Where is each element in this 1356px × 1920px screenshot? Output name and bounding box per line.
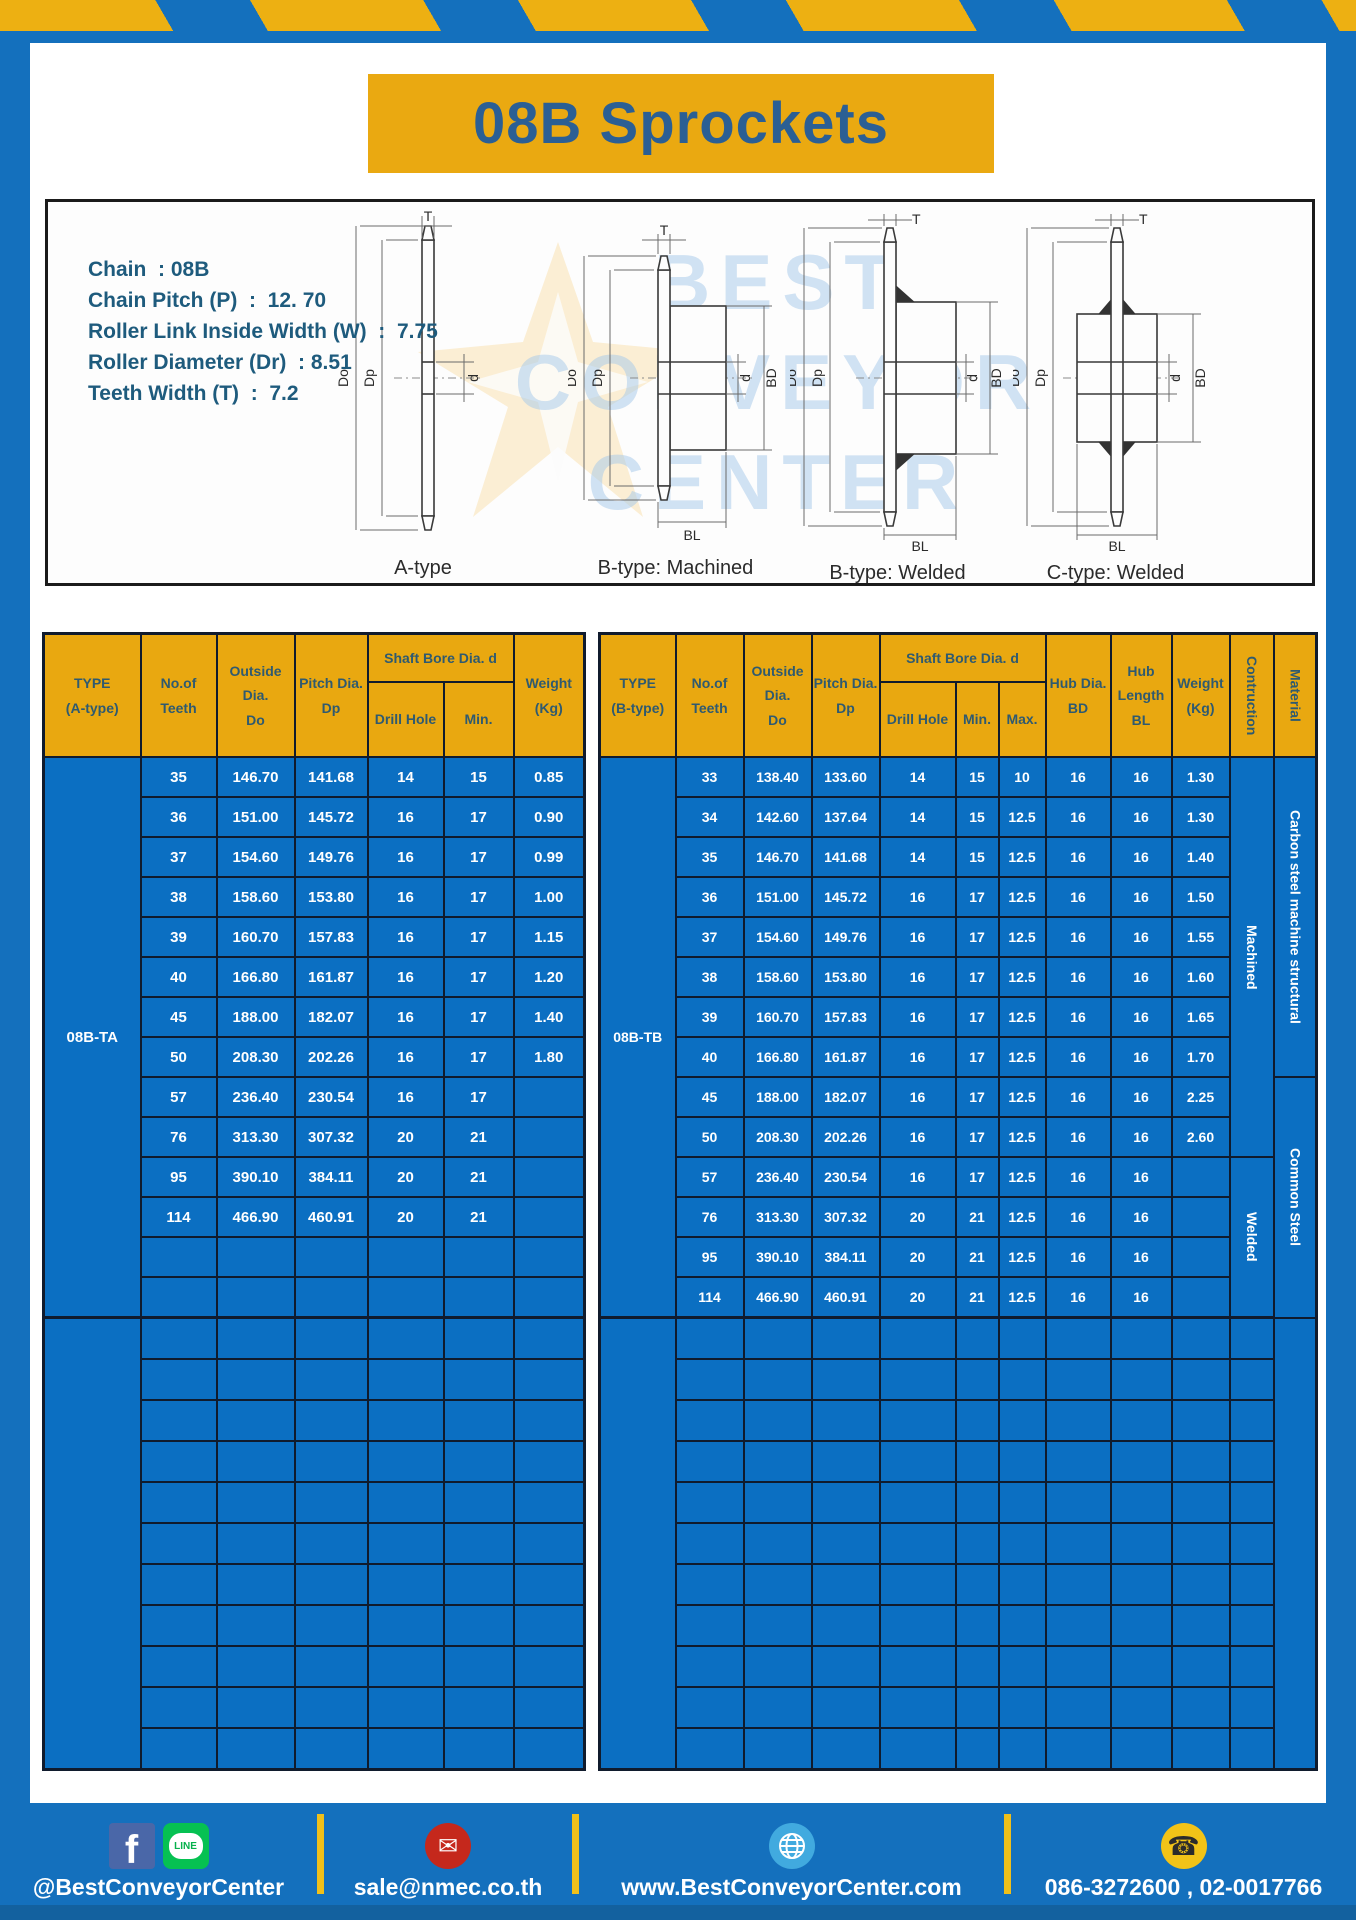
data-cell [141,1277,217,1318]
empty-cell [812,1441,880,1482]
catalog-page: { "title": "08B Sprockets", "specs": [ "… [0,0,1356,1920]
data-cell: 16 [1111,1157,1172,1197]
empty-cell [1111,1400,1172,1441]
data-cell: 14 [880,837,956,877]
dim-label-do: Do [1013,369,1022,387]
phone-numbers: 086-3272600 , 02-0017766 [1045,1874,1323,1901]
data-cell: 149.76 [812,917,880,957]
empty-cell [1046,1605,1111,1646]
data-cell: 16 [1111,1197,1172,1237]
header-teeth: No.of Teeth [141,634,217,758]
empty-cell [295,1605,368,1646]
data-cell [368,1237,444,1277]
empty-cell [880,1564,956,1605]
header-weight: Weight (Kg) [514,634,585,758]
dim-label-do: Do [568,369,579,387]
empty-cell [1111,1359,1172,1400]
data-cell: 16 [1111,757,1172,797]
data-cell: 16 [1046,797,1111,837]
data-cell: 153.80 [295,877,368,917]
b-type-machined-drawing-icon: T Do Dp d BD BL [568,210,783,550]
data-cell: 157.83 [812,997,880,1037]
empty-cell [1172,1605,1230,1646]
empty-cell [676,1400,744,1441]
dim-label-bl: BL [911,538,928,554]
empty-cell [514,1359,585,1400]
data-cell: 16 [368,797,444,837]
data-cell: 12.5 [999,1157,1046,1197]
data-cell: 38 [141,877,217,917]
data-cell: 154.60 [744,917,812,957]
data-cell [514,1237,585,1277]
empty-cell [368,1687,444,1728]
data-cell: 16 [1046,1237,1111,1277]
empty-cell [1046,1523,1111,1564]
data-cell: 33 [676,757,744,797]
data-cell: 153.80 [812,957,880,997]
empty-cell [676,1646,744,1687]
empty-cell [141,1564,217,1605]
empty-cell [514,1687,585,1728]
data-cell: 390.10 [217,1157,295,1197]
data-cell: 17 [956,1037,999,1077]
data-cell: 133.60 [812,757,880,797]
empty-cell [1111,1687,1172,1728]
data-cell: 16 [880,957,956,997]
empty-cell [744,1728,812,1770]
data-cell: 161.87 [295,957,368,997]
data-cell: 17 [444,997,514,1037]
empty-cell [295,1400,368,1441]
data-cell: 17 [444,917,514,957]
empty-cell [1230,1482,1274,1523]
data-cell: 0.99 [514,837,585,877]
data-cell: 137.64 [812,797,880,837]
table-row [600,1318,1317,1360]
empty-cell [141,1482,217,1523]
data-cell: 12.5 [999,877,1046,917]
empty-cell [999,1605,1046,1646]
data-cell: 21 [956,1237,999,1277]
table-row: 95390.10384.11202112.51616 [600,1237,1317,1277]
table-b-body: 08B-TB33138.40133.6014151016161.30Machin… [600,757,1317,1770]
data-cell: 154.60 [217,837,295,877]
header-shaft-bore: Shaft Bore Dia. d [880,634,1046,683]
data-cell: 1.40 [1172,837,1230,877]
empty-cell [744,1482,812,1523]
data-cell: 166.80 [744,1037,812,1077]
empty-cell [444,1523,514,1564]
header-min: Min. [444,682,514,757]
data-cell: 16 [1046,757,1111,797]
empty-cell [999,1359,1046,1400]
empty-cell [444,1400,514,1441]
data-cell: 16 [1111,1117,1172,1157]
dim-label-bl: BL [1108,538,1125,554]
dim-label-dp: Dp [589,369,605,387]
empty-cell [295,1646,368,1687]
dim-label-dp: Dp [809,369,825,387]
empty-cell [368,1318,444,1360]
empty-cell [880,1605,956,1646]
dim-label-t: T [660,222,669,238]
footer-phone-section: ☎ 086-3272600 , 02-0017766 [1011,1807,1356,1901]
data-cell: 146.70 [217,757,295,797]
data-cell: 17 [956,1157,999,1197]
data-cell: 12.5 [999,957,1046,997]
dim-label-d: d [1167,374,1183,382]
footer-social-section: f LINE @BestConveyorCenter [0,1807,317,1901]
data-cell: 16 [1046,1077,1111,1117]
material-cell: Common Steel [1274,1077,1317,1318]
header-teeth: No.of Teeth [676,634,744,758]
empty-cell [1111,1523,1172,1564]
empty-cell [744,1318,812,1360]
data-cell: 17 [444,957,514,997]
dim-label-do: Do [790,369,799,387]
data-cell: 16 [1046,1157,1111,1197]
data-cell: 39 [676,997,744,1037]
header-outside-dia: Outside Dia. Do [744,634,812,758]
data-cell: 12.5 [999,917,1046,957]
empty-cell [444,1646,514,1687]
empty-cell [1172,1359,1230,1400]
data-cell: 21 [956,1197,999,1237]
table-row: 36151.00145.72161712.516161.50 [600,877,1317,917]
data-cell: 1.50 [1172,877,1230,917]
empty-cell [999,1564,1046,1605]
empty-cell [744,1359,812,1400]
data-cell: 14 [880,797,956,837]
empty-cell [1172,1400,1230,1441]
spec-line: Chain Pitch (P) : 12. 70 [88,285,438,316]
empty-cell [1230,1400,1274,1441]
data-cell: 160.70 [744,997,812,1037]
empty-cell [368,1359,444,1400]
empty-cell [1111,1646,1172,1687]
data-cell: 141.68 [812,837,880,877]
empty-cell [999,1523,1046,1564]
diagram-caption: A-type [338,557,508,580]
page-body: 08B Sprockets BEST CONVEYOR CENTER Chain… [30,43,1326,1803]
empty-cell [744,1605,812,1646]
empty-cell [1046,1441,1111,1482]
data-cell: 10 [999,757,1046,797]
data-cell [444,1277,514,1318]
empty-cell [368,1482,444,1523]
phone-icon: ☎ [1161,1823,1207,1869]
footer-divider [572,1814,579,1894]
header-drill-hole: Drill Hole [880,682,956,757]
empty-cell [514,1646,585,1687]
data-cell: 16 [1046,1277,1111,1318]
data-cell: 16 [1111,1277,1172,1318]
empty-cell [1111,1728,1172,1770]
hazard-stripes [0,0,1356,31]
data-cell: 16 [368,1037,444,1077]
empty-cell [217,1318,295,1360]
data-cell: 16 [1111,1077,1172,1117]
data-cell: 236.40 [744,1157,812,1197]
data-cell [514,1077,585,1117]
data-cell: 16 [1046,877,1111,917]
data-cell: 35 [676,837,744,877]
empty-cell [1172,1482,1230,1523]
data-cell: 313.30 [217,1117,295,1157]
dim-label-t: T [424,210,433,224]
table-row: 50208.30202.26161712.516162.60 [600,1117,1317,1157]
facebook-icon: f [109,1823,155,1869]
empty-cell [676,1318,744,1360]
empty-cell [368,1523,444,1564]
header-min: Min. [956,682,999,757]
data-cell: 16 [1046,957,1111,997]
data-cell: 12.5 [999,1077,1046,1117]
empty-cell [141,1359,217,1400]
data-cell: 16 [368,997,444,1037]
empty-cell [1046,1400,1111,1441]
data-cell [1172,1237,1230,1277]
empty-cell [676,1605,744,1646]
data-cell: 39 [141,917,217,957]
table-row [600,1687,1317,1728]
empty-cell [217,1728,295,1770]
empty-cell [1046,1359,1111,1400]
empty-cell [444,1605,514,1646]
empty-cell [744,1400,812,1441]
empty-cell [676,1482,744,1523]
data-cell: 21 [444,1197,514,1237]
data-cell: 16 [1046,1117,1111,1157]
empty-cell [880,1482,956,1523]
data-cell [1172,1197,1230,1237]
data-cell: 17 [956,1077,999,1117]
page-title: 08B Sprockets [473,90,889,157]
data-cell: 208.30 [217,1037,295,1077]
empty-cell [956,1564,999,1605]
data-cell: 1.65 [1172,997,1230,1037]
data-cell: 390.10 [744,1237,812,1277]
line-icon: LINE [163,1823,209,1869]
empty-cell [295,1318,368,1360]
social-handle: @BestConveyorCenter [33,1874,284,1901]
email-icon: ✉ [425,1823,471,1869]
data-cell: 36 [141,797,217,837]
empty-cell [812,1564,880,1605]
table-row: 37154.60149.76161712.516161.55 [600,917,1317,957]
data-cell [141,1237,217,1277]
data-cell: 16 [368,957,444,997]
table-row [600,1441,1317,1482]
dim-label-d: d [465,374,481,382]
data-cell: 1.70 [1172,1037,1230,1077]
data-cell: 45 [676,1077,744,1117]
empty-cell [1111,1564,1172,1605]
empty-cell [217,1359,295,1400]
empty-cell [295,1687,368,1728]
empty-cell [880,1318,956,1360]
header-type: TYPE (B-type) [600,634,676,758]
data-cell: 1.40 [514,997,585,1037]
table-row [44,1318,585,1360]
data-cell: 16 [1046,997,1111,1037]
data-cell: 16 [1111,997,1172,1037]
data-cell: 16 [1046,1037,1111,1077]
data-cell: 57 [141,1077,217,1117]
empty-cell [744,1441,812,1482]
table-row: 76313.30307.32202112.51616 [600,1197,1317,1237]
data-cell: 2.60 [1172,1117,1230,1157]
data-cell: 158.60 [744,957,812,997]
footer-email-section: ✉ sale@nmec.co.th [324,1807,572,1901]
empty-cell [1230,1523,1274,1564]
header-material: Material [1274,634,1317,758]
data-cell: 188.00 [217,997,295,1037]
empty-cell [1046,1564,1111,1605]
data-cell: 182.07 [812,1077,880,1117]
table-row [600,1400,1317,1441]
material-cell: Carbon steel machine structural [1274,757,1317,1077]
data-cell: 45 [141,997,217,1037]
empty-cell [956,1523,999,1564]
data-cell: 37 [676,917,744,957]
data-cell: 17 [444,797,514,837]
chain-specs: Chain : 08B Chain Pitch (P) : 12. 70 Rol… [88,254,438,409]
spec-line: Roller Diameter (Dr) : 8.51 [88,347,438,378]
empty-cell [295,1441,368,1482]
data-cell: 12.5 [999,1117,1046,1157]
line-bubble-label: LINE [169,1833,203,1859]
header-pitch-dia: Pitch Dia. Dp [812,634,880,758]
data-cell: 313.30 [744,1197,812,1237]
data-cell: 37 [141,837,217,877]
data-cell: 76 [141,1117,217,1157]
table-row: 114466.90460.91202112.51616 [600,1277,1317,1318]
data-cell: 145.72 [812,877,880,917]
empty-cell [880,1728,956,1770]
data-cell: 161.87 [812,1037,880,1077]
table-row [600,1646,1317,1687]
empty-cell [295,1359,368,1400]
empty-cell [1172,1646,1230,1687]
data-cell: 16 [368,917,444,957]
data-cell: 1.55 [1172,917,1230,957]
empty-cell [514,1482,585,1523]
data-cell: 12.5 [999,997,1046,1037]
empty-cell [956,1646,999,1687]
data-cell [217,1277,295,1318]
empty-cell [880,1400,956,1441]
data-cell: 151.00 [744,877,812,917]
empty-cell [676,1441,744,1482]
data-cell: 17 [444,837,514,877]
empty-cell [956,1687,999,1728]
table-row: 08B-TA35146.70141.6814150.85 [44,757,585,797]
empty-cell [444,1728,514,1770]
data-cell: 12.5 [999,1237,1046,1277]
empty-cell [999,1646,1046,1687]
data-cell: 95 [676,1237,744,1277]
data-cell [514,1277,585,1318]
data-cell: 20 [880,1277,956,1318]
data-cell: 16 [1111,957,1172,997]
empty-cell [812,1400,880,1441]
data-cell: 16 [1111,1237,1172,1277]
empty-cell [514,1400,585,1441]
empty-cell [1111,1605,1172,1646]
construction-cell: Machined [1230,757,1274,1157]
data-cell: 20 [368,1197,444,1237]
email-icon-row: ✉ [425,1820,471,1872]
data-cell: 15 [444,757,514,797]
data-cell: 17 [444,1077,514,1117]
dim-label-bd: BD [763,368,779,387]
empty-cell [514,1564,585,1605]
table-row [600,1482,1317,1523]
c-type-welded-drawing-icon: T Do Dp d BD BL [1013,210,1218,555]
data-cell: 12.5 [999,1197,1046,1237]
header-construction: Contruction [1230,634,1274,758]
data-cell: 188.00 [744,1077,812,1117]
data-cell: 16 [880,877,956,917]
data-cell: 21 [444,1157,514,1197]
empty-cell [217,1523,295,1564]
data-cell: 151.00 [217,797,295,837]
table-row: 38158.60153.80161712.516161.60 [600,957,1317,997]
data-cell [1172,1157,1230,1197]
data-cell: 460.91 [812,1277,880,1318]
dim-label-d: d [964,374,980,382]
data-cell: 160.70 [217,917,295,957]
data-cell: 384.11 [295,1157,368,1197]
empty-cell [1230,1318,1274,1360]
empty-cell [217,1441,295,1482]
data-cell: 16 [880,1117,956,1157]
empty-cell [999,1687,1046,1728]
table-a: TYPE (A-type) No.of Teeth Outside Dia. D… [42,632,586,1771]
data-cell: 12.5 [999,797,1046,837]
data-cell [514,1117,585,1157]
empty-cell [812,1482,880,1523]
dim-label-bd: BD [988,368,1004,387]
footer-divider [1004,1814,1011,1894]
type-cell-empty [44,1318,141,1770]
empty-cell [444,1359,514,1400]
data-cell: 57 [676,1157,744,1197]
data-cell: 16 [1111,797,1172,837]
empty-cell [880,1646,956,1687]
footer-divider [317,1814,324,1894]
empty-cell [217,1400,295,1441]
empty-cell [676,1523,744,1564]
table-row [600,1564,1317,1605]
type-cell: 08B-TB [600,757,676,1318]
social-icons: f LINE [109,1820,209,1872]
empty-cell [1230,1564,1274,1605]
data-cell: 1.30 [1172,757,1230,797]
data-cell: 21 [444,1117,514,1157]
empty-cell [812,1318,880,1360]
data-cell: 16 [1046,1197,1111,1237]
empty-cell [368,1564,444,1605]
empty-cell [141,1605,217,1646]
table-row [600,1605,1317,1646]
empty-cell [368,1400,444,1441]
diagram-c-type-welded: T Do Dp d BD BL [1013,210,1218,585]
empty-cell [141,1646,217,1687]
empty-cell [744,1687,812,1728]
data-cell: 138.40 [744,757,812,797]
